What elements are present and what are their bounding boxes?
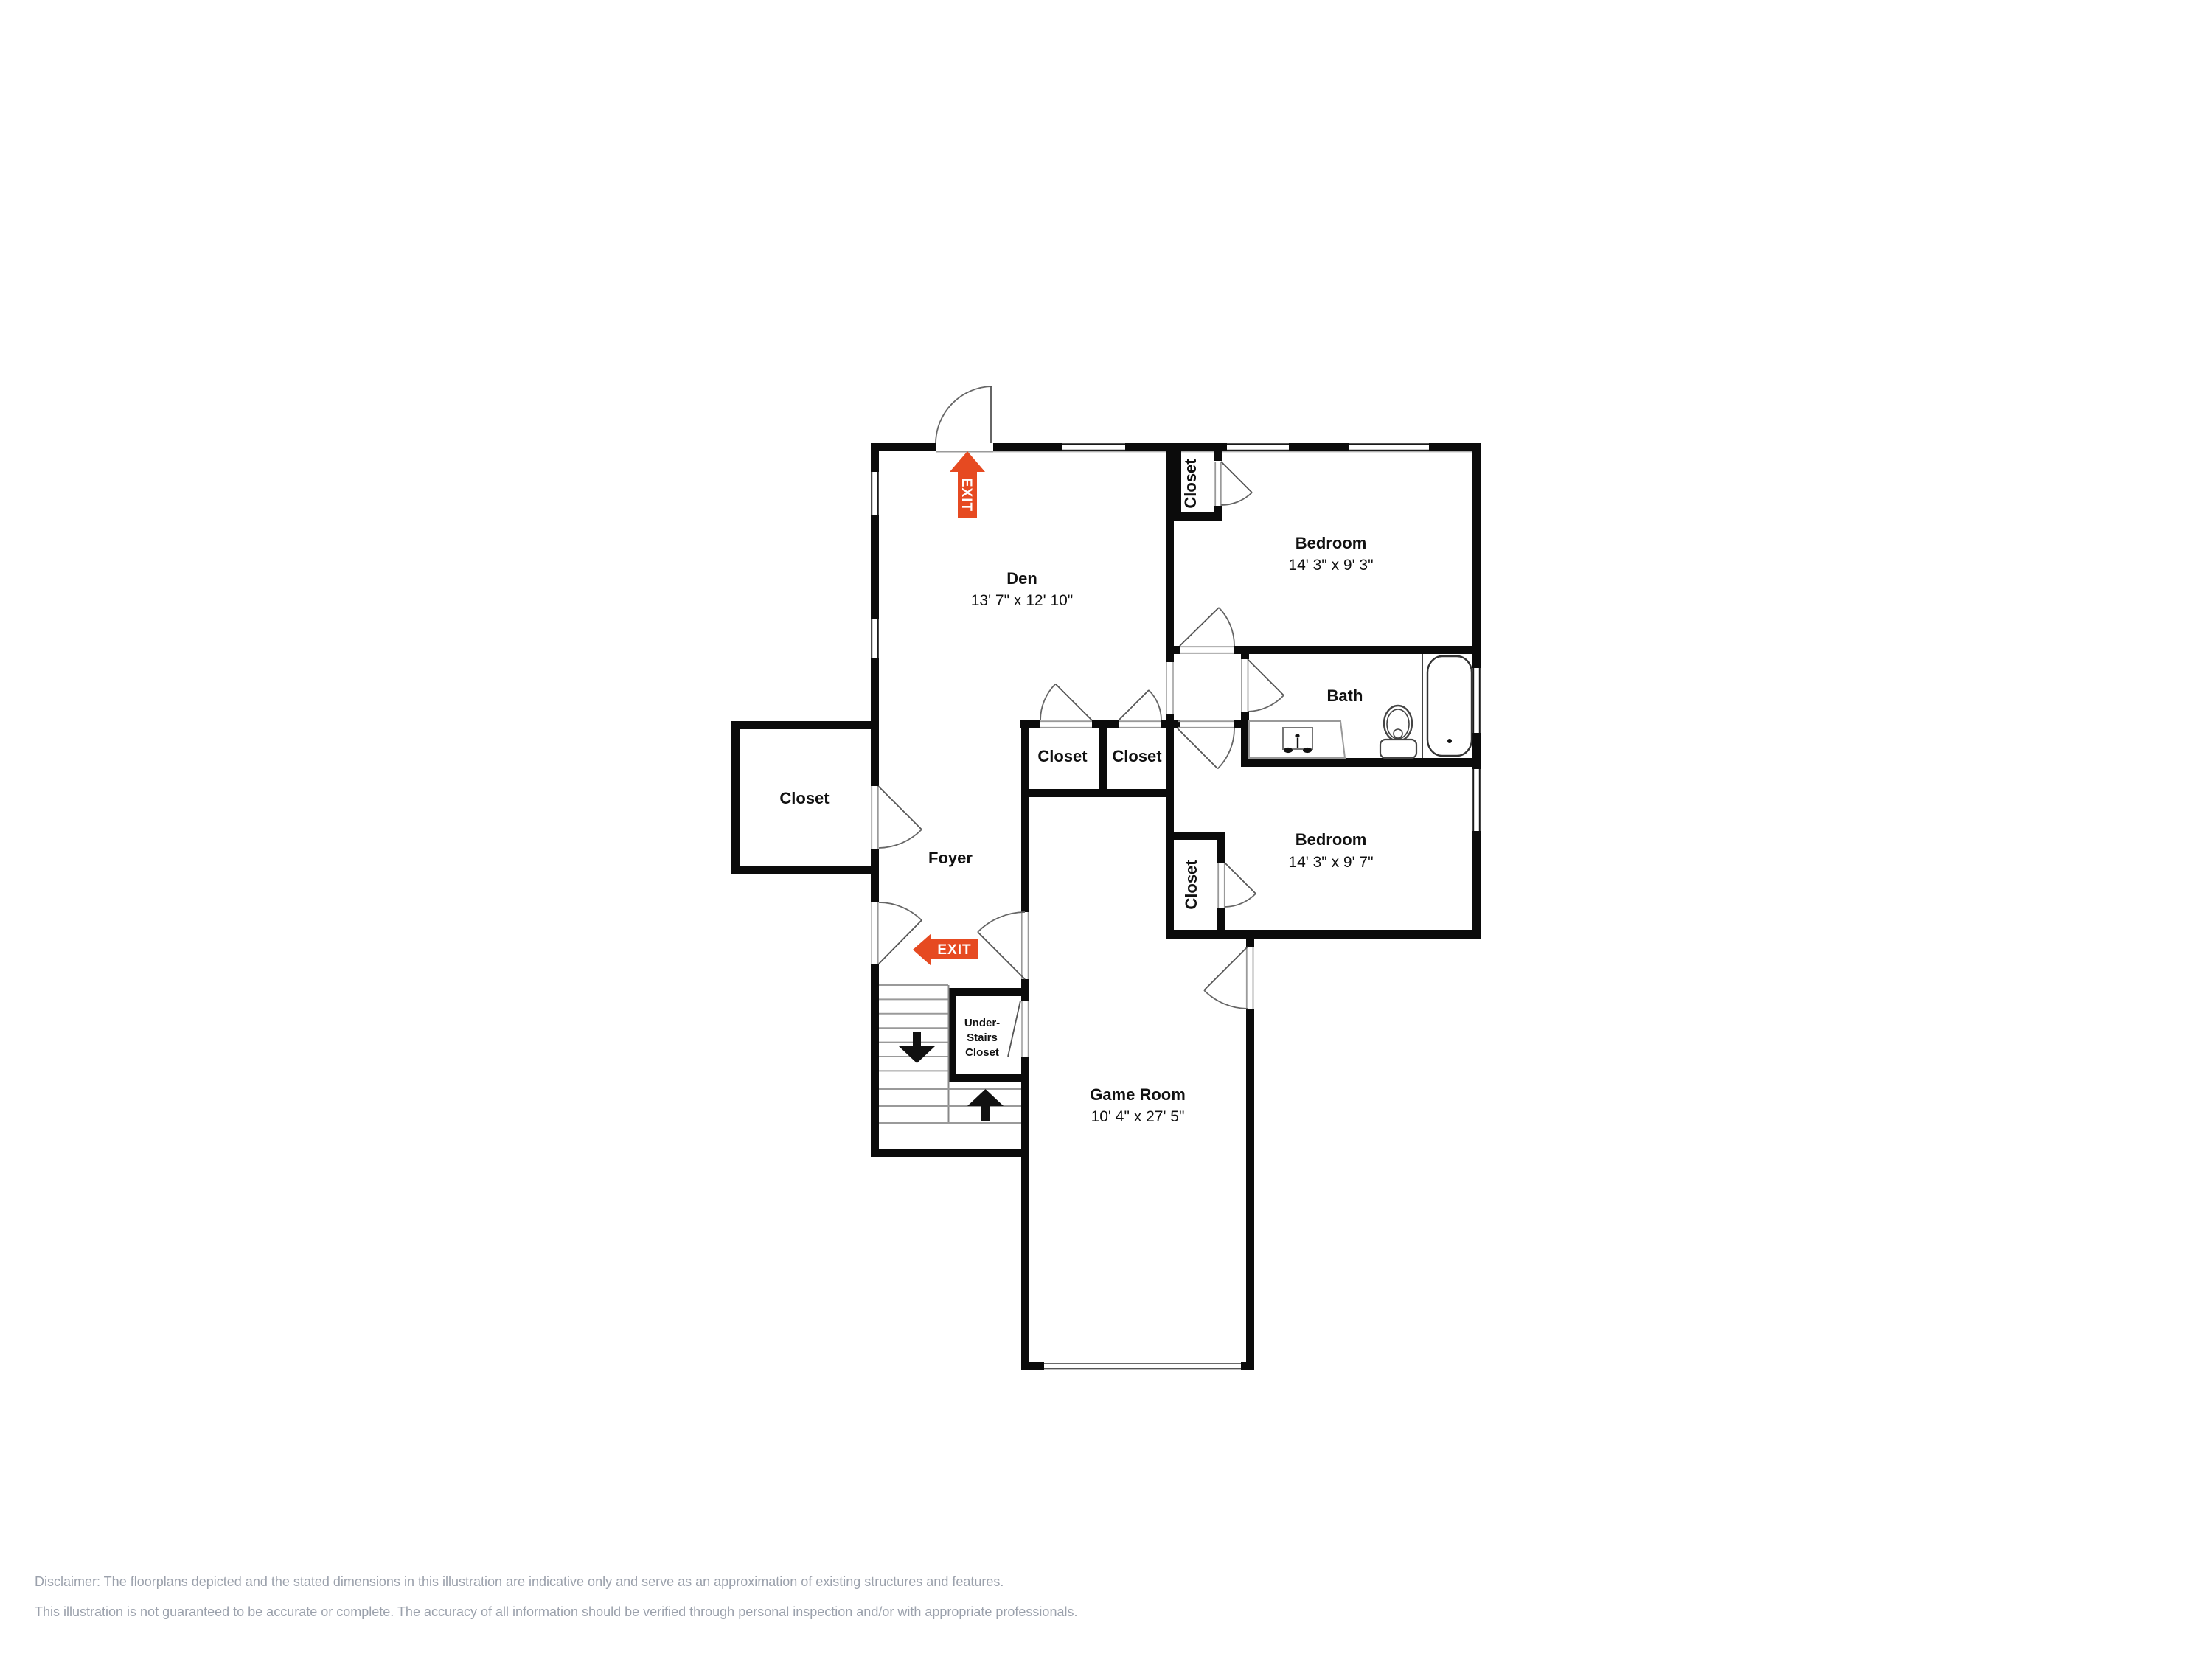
svg-text:14' 3" x 9' 7": 14' 3" x 9' 7" bbox=[1288, 854, 1373, 871]
svg-text:14' 3" x 9' 3": 14' 3" x 9' 3" bbox=[1288, 557, 1373, 574]
svg-text:EXIT: EXIT bbox=[937, 942, 971, 958]
svg-text:Under-: Under- bbox=[964, 1017, 1000, 1029]
svg-text:Bedroom: Bedroom bbox=[1295, 534, 1367, 552]
svg-text:Closet: Closet bbox=[1181, 459, 1200, 509]
svg-text:Bath: Bath bbox=[1327, 686, 1363, 705]
svg-text:This illustration is not guara: This illustration is not guaranteed to b… bbox=[35, 1604, 1077, 1619]
svg-text:Bedroom: Bedroom bbox=[1295, 830, 1367, 849]
svg-text:Closet: Closet bbox=[1112, 747, 1162, 765]
svg-text:13' 7" x 12' 10": 13' 7" x 12' 10" bbox=[971, 592, 1074, 609]
svg-text:Stairs: Stairs bbox=[967, 1032, 998, 1044]
svg-text:Foyer: Foyer bbox=[928, 849, 973, 867]
svg-text:Game Room: Game Room bbox=[1090, 1085, 1186, 1104]
svg-text:Den: Den bbox=[1006, 569, 1037, 588]
svg-text:EXIT: EXIT bbox=[959, 478, 974, 512]
svg-text:Disclaimer: The floorplans dep: Disclaimer: The floorplans depicted and … bbox=[35, 1574, 1004, 1589]
svg-text:Closet: Closet bbox=[779, 789, 829, 807]
svg-text:Closet: Closet bbox=[1037, 747, 1088, 765]
svg-text:10' 4" x 27' 5": 10' 4" x 27' 5" bbox=[1091, 1108, 1185, 1125]
svg-text:Closet: Closet bbox=[965, 1046, 999, 1059]
svg-text:Closet: Closet bbox=[1182, 860, 1200, 910]
